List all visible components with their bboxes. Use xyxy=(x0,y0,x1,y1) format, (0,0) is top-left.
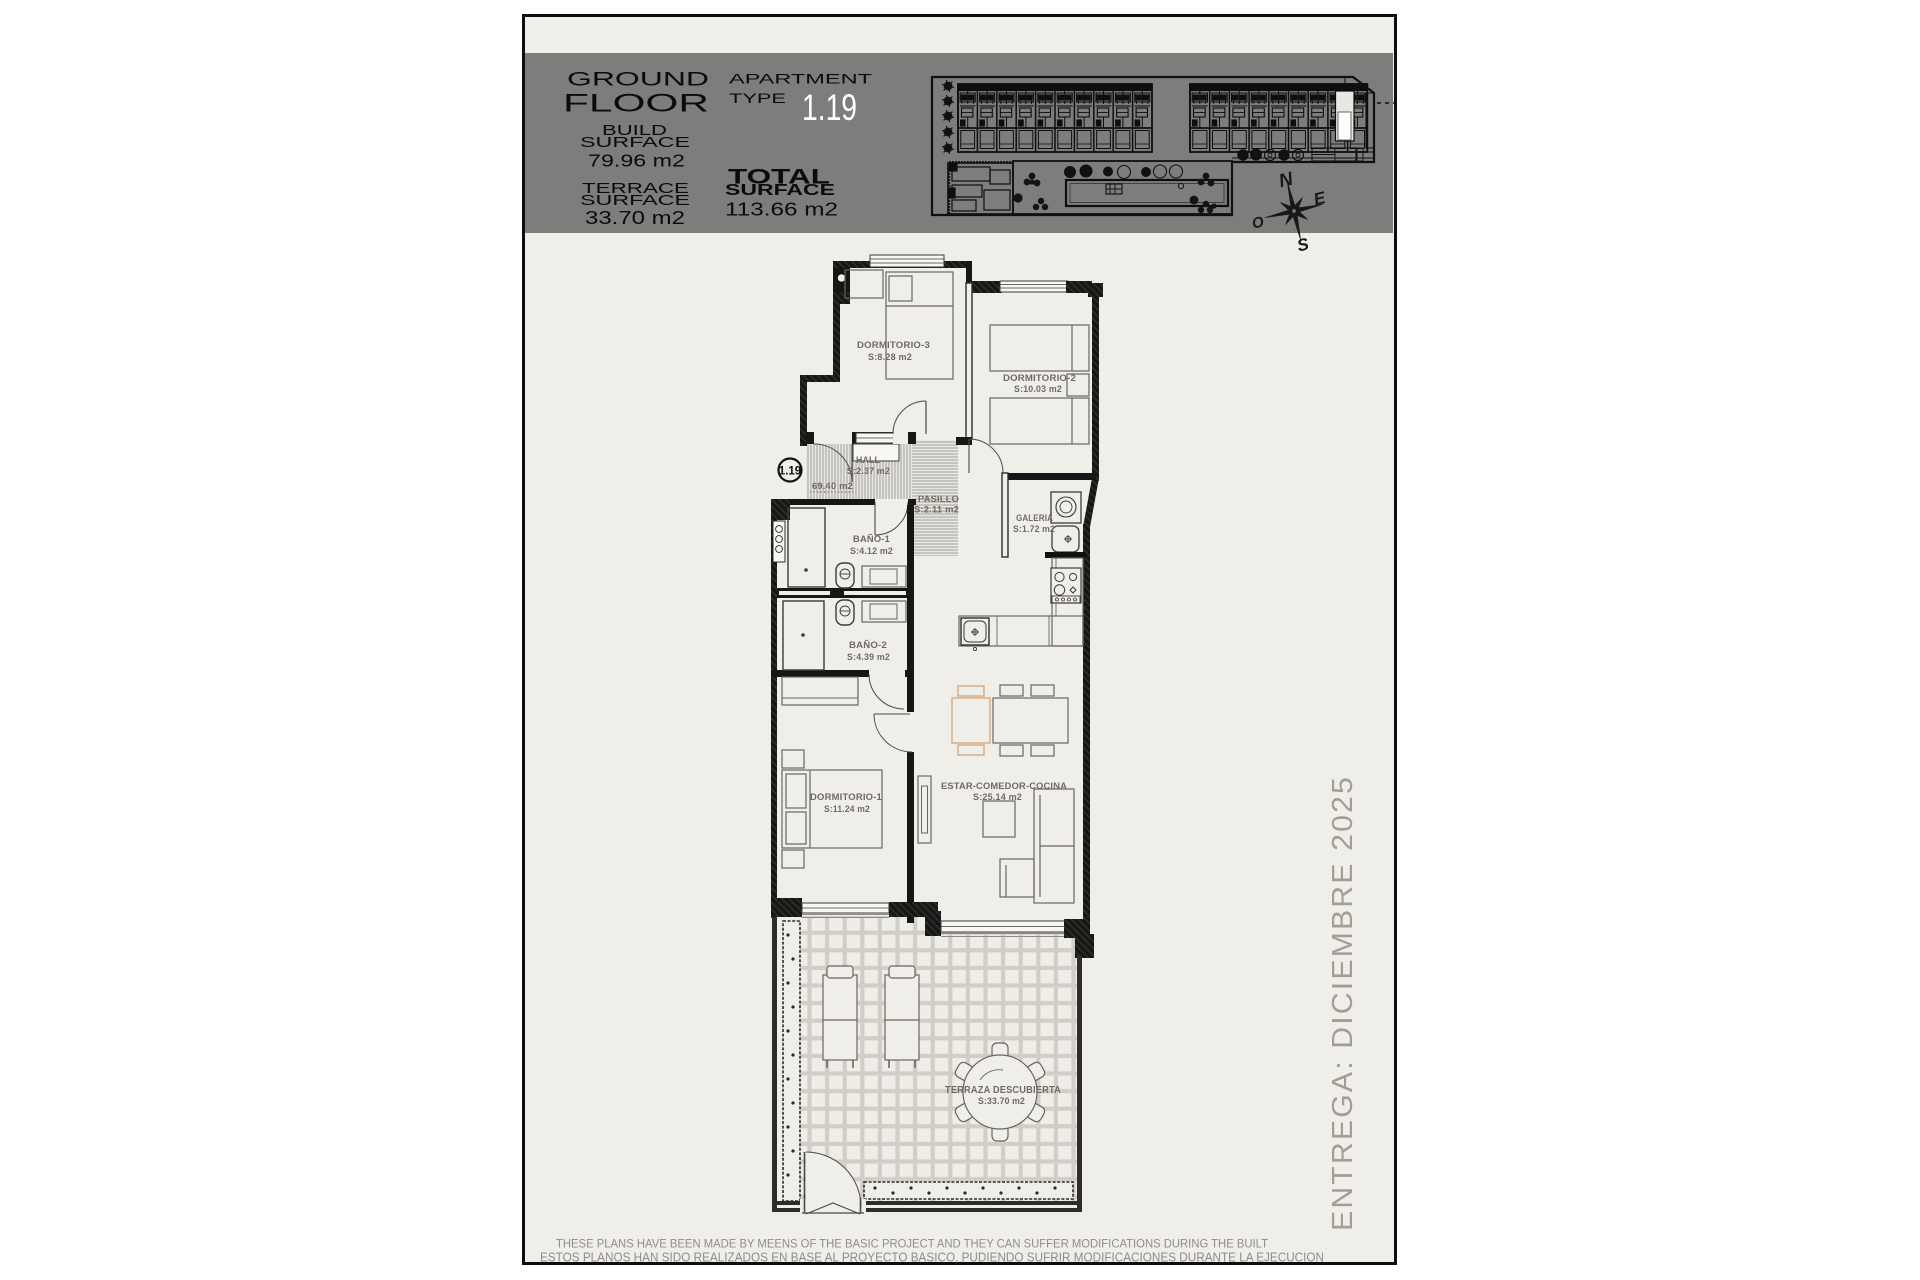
svg-text:S:2.11 m2: S:2.11 m2 xyxy=(914,505,959,515)
svg-text:PASILLO: PASILLO xyxy=(918,494,959,504)
svg-text:ESTAR-COMEDOR-COCINA: ESTAR-COMEDOR-COCINA xyxy=(941,781,1067,792)
svg-text:79.96 m2: 79.96 m2 xyxy=(588,151,685,171)
svg-text:DORMITORIO-3: DORMITORIO-3 xyxy=(857,340,930,351)
svg-text:ENTREGA: DICIEMBRE 2025: ENTREGA: DICIEMBRE 2025 xyxy=(1327,775,1359,1231)
svg-text:S:10.03 m2: S:10.03 m2 xyxy=(1014,384,1062,394)
svg-text:SURFACE: SURFACE xyxy=(580,135,691,151)
svg-text:1.19: 1.19 xyxy=(779,466,801,478)
svg-text:S:2.37 m2: S:2.37 m2 xyxy=(847,466,890,476)
svg-text:ESTOS PLANOS HAN SIDO REALIZAD: ESTOS PLANOS HAN SIDO REALIZADOS EN BASE… xyxy=(540,1250,1324,1265)
svg-text:BAÑO-1: BAÑO-1 xyxy=(853,534,891,545)
svg-text:TYPE: TYPE xyxy=(729,91,786,106)
svg-text:SURFACE: SURFACE xyxy=(580,192,690,209)
svg-text:S:11.24 m2: S:11.24 m2 xyxy=(824,804,870,814)
svg-text:69.40 m2: 69.40 m2 xyxy=(812,481,853,492)
svg-text:S:1.72 m2: S:1.72 m2 xyxy=(1013,524,1055,534)
svg-text:HALL: HALL xyxy=(856,455,880,465)
svg-text:SURFACE: SURFACE xyxy=(725,182,835,199)
svg-text:BAÑO-2: BAÑO-2 xyxy=(849,640,887,651)
svg-text:33.70 m2: 33.70 m2 xyxy=(585,208,685,228)
svg-text:TERRAZA DESCUBIERTA: TERRAZA DESCUBIERTA xyxy=(945,1085,1061,1096)
svg-text:FLOOR: FLOOR xyxy=(563,90,709,118)
svg-text:GALERIA: GALERIA xyxy=(1016,513,1053,523)
svg-text:S:33.70 m2: S:33.70 m2 xyxy=(978,1096,1025,1106)
svg-text:S:25.14 m2: S:25.14 m2 xyxy=(973,792,1022,802)
svg-text:S:4.12 m2: S:4.12 m2 xyxy=(850,546,893,556)
svg-text:THESE PLANS HAVE BEEN MADE BY: THESE PLANS HAVE BEEN MADE BY MEENS OF T… xyxy=(556,1237,1269,1251)
svg-text:S:4.39 m2: S:4.39 m2 xyxy=(847,652,890,662)
svg-text:DORMITORIO-1: DORMITORIO-1 xyxy=(810,792,883,803)
svg-text:113.66 m2: 113.66 m2 xyxy=(725,199,838,220)
svg-text:S:8.28 m2: S:8.28 m2 xyxy=(868,352,912,362)
svg-text:GROUND: GROUND xyxy=(567,70,709,91)
svg-text:DORMITORIO-2: DORMITORIO-2 xyxy=(1003,373,1076,384)
svg-text:APARTMENT: APARTMENT xyxy=(729,72,872,87)
svg-text:1.19: 1.19 xyxy=(802,87,857,128)
